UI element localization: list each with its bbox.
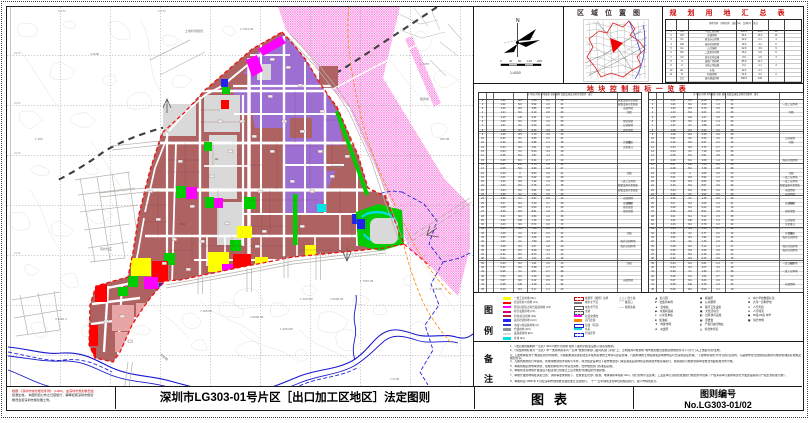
svg-text:113.50: 113.50 [58,9,66,13]
svg-text:120: 120 [527,59,532,63]
svg-text:7 2705: 7 2705 [390,377,400,381]
svg-text:1 7057: 1 7057 [420,62,430,66]
svg-text:布龙路: 布龙路 [159,352,169,362]
svg-text:4 3096.4: 4 3096.4 [55,317,67,321]
svg-text:52.4: 52.4 [180,222,186,226]
svg-text:1 7057.05: 1 7057.05 [360,279,374,283]
svg-text:200: 200 [537,59,542,63]
svg-text:土地利用规划: 土地利用规划 [185,28,203,33]
svg-text:23.00: 23.00 [14,51,21,55]
svg-text:7 405.06: 7 405.06 [200,309,212,313]
svg-text:1 205.6W: 1 205.6W [300,297,313,301]
svg-text:1 405: 1 405 [35,137,43,141]
svg-text:80: 80 [518,59,522,63]
svg-text:N: N [516,18,520,24]
svg-text:4 3096.05: 4 3096.05 [250,315,264,319]
svg-text:3 2096: 3 2096 [90,52,100,56]
svg-text:22.50: 22.50 [14,101,21,105]
svg-text:21.00: 21.00 [14,251,21,255]
svg-text:114.50: 114.50 [158,9,166,13]
svg-text:平南铁路: 平南铁路 [330,164,342,169]
svg-text:现状村庄: 现状村庄 [100,246,112,251]
svg-text:40: 40 [509,59,513,63]
svg-text:1 205.08: 1 205.08 [430,287,442,291]
svg-text:22.00: 22.00 [14,151,21,155]
svg-text:M1: M1 [215,157,219,161]
svg-text:2 7013.05: 2 7013.05 [240,27,254,31]
svg-text:留用地: 留用地 [420,96,429,101]
svg-text:4 3096.05: 4 3096.05 [330,297,344,301]
svg-text:0: 0 [500,59,502,63]
svg-text:205.08: 205.08 [440,137,450,141]
svg-text:1 205.6W: 1 205.6W [280,327,293,331]
svg-text:1:4000: 1:4000 [510,71,521,75]
